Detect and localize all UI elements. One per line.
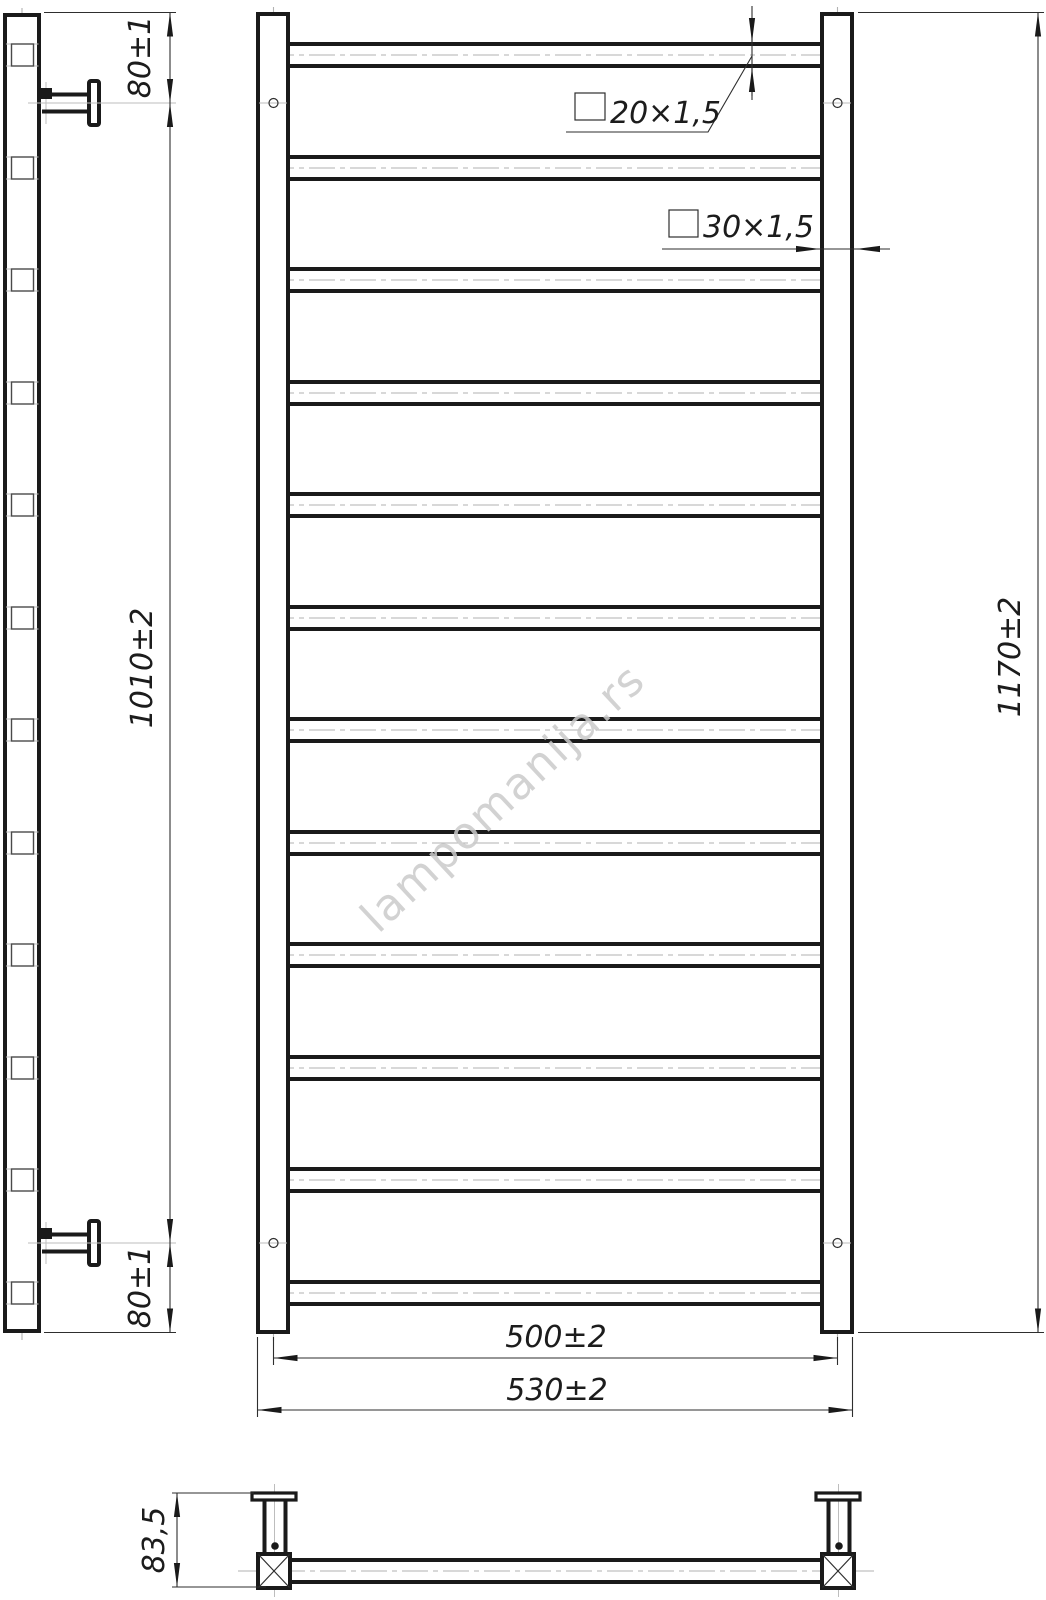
dim-text-80-bottom: 80±1 [123, 1246, 158, 1328]
rung-tube-section-label: 20×1,5 [610, 96, 721, 131]
side-rung-end [6, 269, 39, 291]
rung-end-square [12, 607, 34, 629]
towel-radiator-technical-drawing: 20×1,5 30×1,5 80±1 1010±2 80±1 1170±2 50… [0, 0, 1046, 1600]
dim-text-530: 530±2 [506, 1373, 607, 1408]
rung-end-square [12, 494, 34, 516]
dim-text-500: 500±2 [505, 1320, 606, 1355]
dimensions: 20×1,5 30×1,5 80±1 1010±2 80±1 1170±2 50… [44, 6, 1044, 1587]
screw-dot [271, 1542, 279, 1550]
rung-end-square [12, 1057, 34, 1079]
rung-end-square [12, 269, 34, 291]
callout-post-tube: 30×1,5 [662, 210, 890, 249]
side-rung-end [6, 719, 39, 741]
rung-end-square [12, 1169, 34, 1191]
side-rung-end [6, 1057, 39, 1079]
drawing-page: 20×1,5 30×1,5 80±1 1010±2 80±1 1170±2 50… [0, 0, 1046, 1600]
rung [268, 44, 850, 66]
watermark-text: lampomanija.rs [351, 654, 656, 943]
rung [268, 1057, 850, 1079]
front-view [258, 7, 852, 1341]
rung [268, 607, 850, 629]
dim-text-80-top: 80±1 [123, 16, 158, 98]
rung-end-square [12, 157, 34, 179]
rung [268, 1169, 850, 1191]
rung-end-square [12, 832, 34, 854]
rung-end-square [12, 382, 34, 404]
screw-dot [835, 1542, 843, 1550]
side-rung-end [6, 607, 39, 629]
rung [268, 269, 850, 291]
bracket-flange-plate [252, 1493, 296, 1500]
rung [268, 832, 850, 854]
dim-text-1010: 1010±2 [125, 608, 160, 729]
side-rung-end [6, 944, 39, 966]
rung-end-square [12, 44, 34, 66]
square-section-icon [669, 210, 698, 237]
side-rung-end [6, 157, 39, 179]
side-rung-end [6, 44, 39, 66]
side-rung-end [6, 1282, 39, 1304]
left-post-tube [258, 14, 288, 1332]
side-vertical-tube [5, 15, 39, 1331]
square-section-icon [575, 93, 605, 120]
rung-end-square [12, 944, 34, 966]
rung [268, 494, 850, 516]
bottom-view [238, 1484, 874, 1597]
dim-text-83-5: 83,5 [137, 1507, 172, 1574]
rung-end-square [12, 1282, 34, 1304]
side-rung-end [6, 494, 39, 516]
post-tube-section-label: 30×1,5 [703, 210, 814, 245]
rung [268, 382, 850, 404]
callout-rung-tube: 20×1,5 [566, 6, 752, 132]
right-post-tube [822, 14, 852, 1332]
side-rung-end [6, 1169, 39, 1191]
rung [268, 157, 850, 179]
side-rung-end [6, 382, 39, 404]
side-rung-end [6, 832, 39, 854]
rung-end-square [12, 719, 34, 741]
rung [268, 944, 850, 966]
dim-text-1170: 1170±2 [993, 597, 1028, 718]
bracket-flange-plate [816, 1493, 860, 1500]
rung [268, 1282, 850, 1304]
